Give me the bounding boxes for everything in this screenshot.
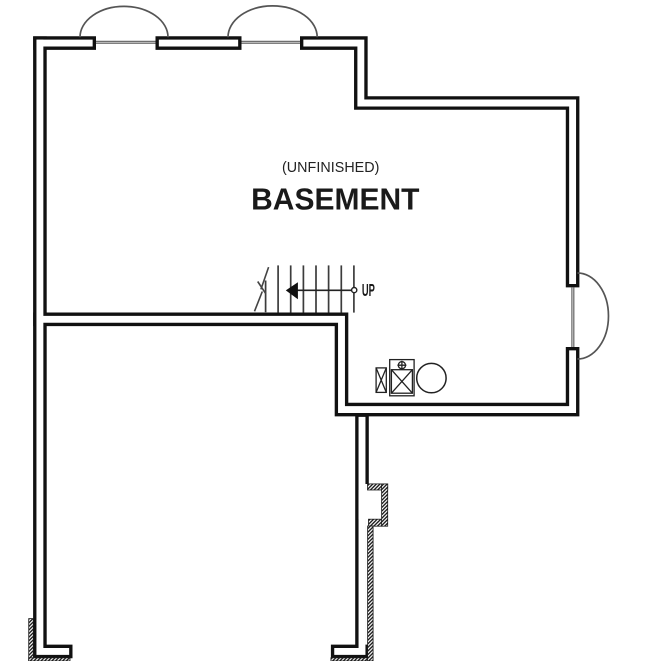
svg-text:(UNFINISHED): (UNFINISHED) — [282, 160, 379, 176]
svg-text:BASEMENT: BASEMENT — [251, 182, 419, 217]
svg-text:UP: UP — [362, 280, 375, 300]
